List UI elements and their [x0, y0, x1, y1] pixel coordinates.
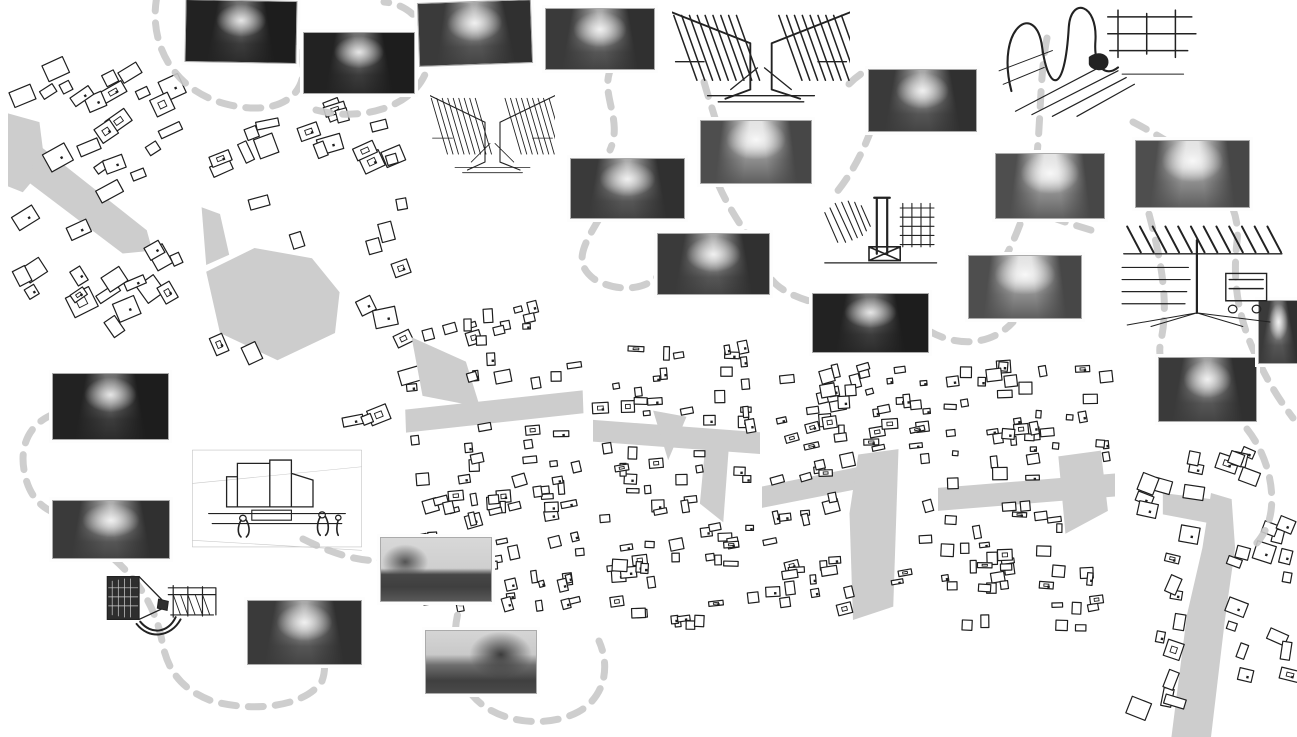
street-photo-18	[425, 630, 537, 694]
street-photo-11	[968, 255, 1082, 319]
street-photo-3	[417, 0, 533, 67]
route-dash-4	[582, 219, 657, 288]
route-dash-9	[836, 130, 871, 193]
street-photo-16	[247, 600, 362, 665]
street-photo-7	[570, 158, 685, 219]
street-photo-12	[812, 293, 929, 353]
route-dash-7	[929, 322, 1013, 342]
street-photo-10	[657, 233, 770, 295]
street-photo-13	[1158, 357, 1257, 422]
street-photo-1	[184, 0, 297, 64]
street-photo-8	[995, 153, 1105, 219]
street-photo-6	[700, 120, 812, 184]
sketch-covered-street	[672, 0, 850, 108]
sketch-street-canyon	[430, 85, 555, 178]
route-dash-3	[608, 66, 615, 150]
figure-ground-map-7	[1125, 432, 1297, 737]
sketch-gestural-boulevard	[995, 0, 1200, 118]
sketch-kiosk	[817, 192, 947, 272]
street-photo-14	[52, 373, 169, 440]
sketch-rooftop-terrace	[187, 440, 367, 557]
figure-ground-map-4	[593, 330, 760, 640]
route-dash-10	[849, 72, 864, 84]
sketch-awning	[1117, 222, 1287, 328]
street-photo-4	[545, 8, 655, 70]
collage-canvas	[0, 0, 1297, 737]
sketch-double-perspective	[100, 563, 222, 642]
figure-ground-map-2	[197, 95, 427, 435]
street-photo-15	[52, 500, 170, 559]
figure-ground-map-6	[938, 353, 1115, 640]
street-photo-9	[1135, 140, 1250, 208]
street-photo-17	[380, 537, 492, 602]
figure-ground-map-5	[762, 353, 937, 620]
figure-ground-map-1	[8, 55, 193, 347]
street-photo-2	[303, 32, 415, 94]
street-photo-5	[868, 69, 977, 132]
route-dash-11	[1051, 217, 1094, 231]
